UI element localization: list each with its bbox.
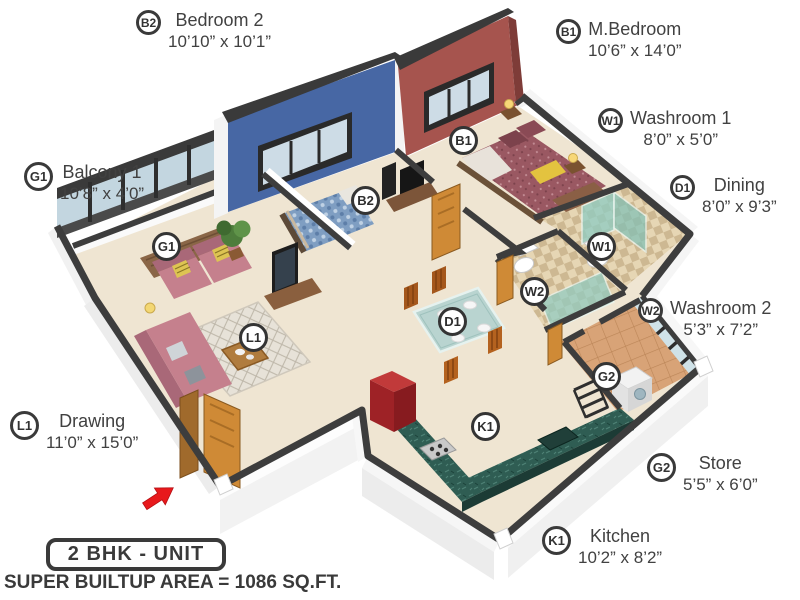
room-label-w1-name: Washroom 1 [630,108,731,129]
room-label-k1-name: Kitchen [590,526,650,547]
room-label-g1: G1 Balcony 1 10’8” x 4’0” [24,162,144,204]
room-label-k1-code: K1 [542,526,571,555]
room-label-g2-code: G2 [647,453,676,482]
plan-badge-b1: B1 [449,126,478,155]
room-label-d1-dims: 8’0” x 9’3” [702,196,777,217]
room-label-b1-name: M.Bedroom [588,19,681,40]
room-label-w2-dims: 5’3” x 7’2” [683,319,758,340]
room-label-b2-code: B2 [136,10,161,35]
room-label-b2-dims: 10’10” x 10’1” [168,31,271,52]
room-label-w1-dims: 8’0” x 5’0” [643,129,718,150]
room-label-w2-name: Washroom 2 [670,298,771,319]
plan-badge-b2: B2 [351,186,380,215]
room-label-g2-name: Store [699,453,742,474]
room-label-d1-name: Dining [714,175,765,196]
room-label-g1-code: G1 [24,162,53,191]
room-label-g2-dims: 5’5” x 6’0” [683,474,758,495]
floor-plan-page: G1 B2 B1 W1 W2 D1 L1 G2 K1 B2 Bedroom 2 … [0,0,800,600]
room-label-b1-code: B1 [556,19,581,44]
room-label-d1: D1 Dining 8’0” x 9’3” [670,175,777,217]
room-label-b2: B2 Bedroom 2 10’10” x 10’1” [136,10,271,52]
room-label-g1-dims: 10’8” x 4’0” [60,183,144,204]
room-label-l1-dims: 11’0” x 15’0” [46,432,138,453]
room-label-w1-code: W1 [598,108,623,133]
room-label-d1-code: D1 [670,175,695,200]
plan-badge-g2: G2 [592,362,621,391]
unit-type-box: 2 BHK - UNIT [46,538,226,571]
room-label-w2: W2 Washroom 2 5’3” x 7’2” [638,298,771,340]
room-label-w1: W1 Washroom 1 8’0” x 5’0” [598,108,731,150]
plan-badge-l1: L1 [239,323,268,352]
room-label-l1-name: Drawing [59,411,125,432]
room-label-g1-name: Balcony 1 [63,162,142,183]
room-label-b1-dims: 10’6” x 14’0” [588,40,682,61]
plan-badge-w1: W1 [587,232,616,261]
room-label-l1: L1 Drawing 11’0” x 15’0” [10,411,138,453]
room-label-w2-code: W2 [638,298,663,323]
plan-badge-d1: D1 [438,307,467,336]
plan-badge-k1: K1 [471,412,500,441]
plan-badge-g1: G1 [152,232,181,261]
room-label-g2: G2 Store 5’5” x 6’0” [647,453,758,495]
entrance-arrow-icon [139,479,178,514]
room-label-b1: B1 M.Bedroom 10’6” x 14’0” [556,19,682,61]
room-label-k1: K1 Kitchen 10’2” x 8’2” [542,526,662,568]
room-label-l1-code: L1 [10,411,39,440]
room-label-b2-name: Bedroom 2 [175,10,263,31]
super-builtup-area-text: SUPER BUILTUP AREA = 1086 SQ.FT. [4,572,341,594]
plan-badge-w2: W2 [520,277,549,306]
room-label-k1-dims: 10’2” x 8’2” [578,547,662,568]
